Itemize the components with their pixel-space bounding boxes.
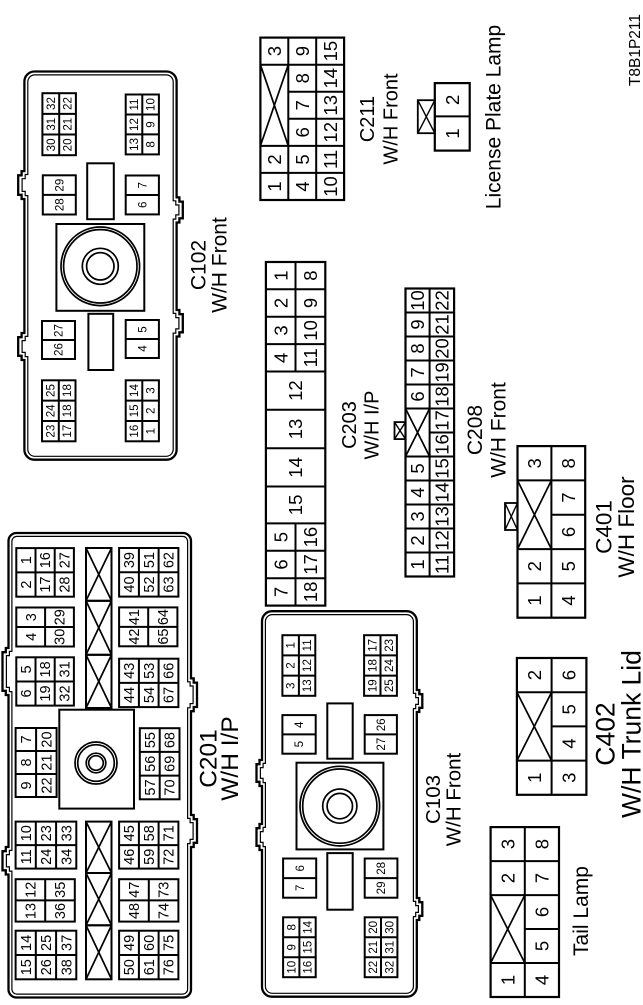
svg-text:5: 5 <box>407 463 428 473</box>
svg-text:4: 4 <box>292 181 313 191</box>
svg-text:23: 23 <box>45 425 58 438</box>
svg-text:8: 8 <box>407 343 428 353</box>
svg-text:37: 37 <box>59 935 75 951</box>
svg-text:17: 17 <box>61 425 74 438</box>
svg-text:25: 25 <box>383 679 396 692</box>
svg-text:4: 4 <box>270 353 291 363</box>
svg-text:C208: C208 <box>464 405 487 455</box>
svg-text:64: 64 <box>156 609 172 625</box>
svg-text:14: 14 <box>19 935 35 951</box>
svg-text:11: 11 <box>320 150 341 169</box>
svg-text:5: 5 <box>292 154 313 164</box>
svg-text:7: 7 <box>558 492 579 502</box>
svg-text:13: 13 <box>320 95 341 116</box>
svg-text:2: 2 <box>145 408 158 414</box>
svg-text:40: 40 <box>122 576 138 592</box>
svg-text:10: 10 <box>19 825 35 841</box>
svg-text:48: 48 <box>127 903 143 919</box>
svg-text:8: 8 <box>145 141 158 147</box>
svg-text:4: 4 <box>293 721 306 728</box>
svg-text:66: 66 <box>162 663 178 679</box>
svg-text:23: 23 <box>383 639 396 652</box>
svg-text:27: 27 <box>53 324 66 337</box>
svg-text:1: 1 <box>524 773 545 783</box>
svg-text:3: 3 <box>145 387 158 393</box>
svg-text:7: 7 <box>407 367 428 377</box>
svg-text:29: 29 <box>53 609 69 625</box>
svg-text:32: 32 <box>45 97 58 110</box>
svg-text:3: 3 <box>24 613 40 621</box>
svg-text:3: 3 <box>524 458 545 468</box>
svg-text:4: 4 <box>558 595 579 605</box>
svg-text:49: 49 <box>122 935 138 951</box>
svg-text:25: 25 <box>45 384 58 397</box>
svg-text:5: 5 <box>270 532 291 542</box>
svg-text:17: 17 <box>38 577 54 593</box>
svg-text:W/H Front: W/H Front <box>443 753 466 847</box>
svg-text:28: 28 <box>375 862 388 875</box>
svg-text:W/H Front: W/H Front <box>381 73 403 165</box>
svg-text:14: 14 <box>302 920 315 933</box>
svg-text:19: 19 <box>432 362 453 383</box>
svg-text:W/H Front: W/H Front <box>488 382 511 478</box>
svg-text:51: 51 <box>142 552 158 568</box>
svg-text:15: 15 <box>320 41 341 62</box>
svg-text:10: 10 <box>300 320 321 341</box>
svg-text:4: 4 <box>24 633 40 641</box>
svg-text:30: 30 <box>45 138 58 151</box>
svg-text:21: 21 <box>432 314 453 335</box>
svg-text:16: 16 <box>302 961 315 974</box>
svg-text:35: 35 <box>53 882 69 898</box>
svg-text:1: 1 <box>285 642 298 648</box>
svg-text:12: 12 <box>24 882 40 898</box>
svg-text:W/H I/P: W/H I/P <box>362 391 384 460</box>
svg-text:T8B1P211: T8B1P211 <box>627 14 643 86</box>
svg-text:15: 15 <box>128 404 141 417</box>
svg-text:4: 4 <box>136 345 149 352</box>
svg-text:4: 4 <box>559 738 580 748</box>
svg-text:13: 13 <box>24 903 40 919</box>
svg-text:13: 13 <box>285 419 306 440</box>
svg-text:9: 9 <box>145 121 158 127</box>
svg-text:16: 16 <box>128 425 141 438</box>
svg-text:14: 14 <box>128 384 141 397</box>
svg-text:2: 2 <box>442 95 463 105</box>
svg-text:21: 21 <box>40 754 56 770</box>
svg-text:20: 20 <box>40 731 56 747</box>
svg-text:12: 12 <box>432 530 453 551</box>
svg-text:W/H I/P: W/H I/P <box>217 716 244 800</box>
svg-text:31: 31 <box>383 941 396 954</box>
svg-text:6: 6 <box>294 865 307 871</box>
svg-text:12: 12 <box>320 122 341 143</box>
svg-text:75: 75 <box>162 935 178 951</box>
svg-text:1: 1 <box>497 975 518 985</box>
svg-text:5: 5 <box>532 941 553 951</box>
svg-text:7: 7 <box>292 100 313 110</box>
svg-text:32: 32 <box>57 685 73 701</box>
svg-text:76: 76 <box>162 959 178 975</box>
svg-text:15: 15 <box>19 959 35 975</box>
svg-text:5: 5 <box>558 561 579 571</box>
svg-text:3: 3 <box>497 839 518 849</box>
svg-text:License Plate Lamp: License Plate Lamp <box>483 25 506 209</box>
svg-text:22: 22 <box>432 290 453 311</box>
svg-text:10: 10 <box>407 290 428 311</box>
svg-text:8: 8 <box>300 270 321 280</box>
svg-text:65: 65 <box>156 629 172 645</box>
svg-text:9: 9 <box>407 319 428 329</box>
svg-text:73: 73 <box>157 882 173 898</box>
svg-text:39: 39 <box>122 552 138 568</box>
svg-text:Tail Lamp: Tail Lamp <box>570 866 593 956</box>
svg-text:57: 57 <box>143 779 159 795</box>
svg-text:31: 31 <box>57 661 73 677</box>
svg-text:14: 14 <box>320 68 341 89</box>
svg-text:1: 1 <box>270 270 291 280</box>
svg-text:24: 24 <box>383 659 396 672</box>
svg-text:59: 59 <box>142 849 158 865</box>
svg-text:67: 67 <box>162 687 178 703</box>
svg-text:62: 62 <box>162 552 178 568</box>
svg-text:2: 2 <box>270 298 291 308</box>
svg-text:42: 42 <box>127 629 143 645</box>
svg-text:5: 5 <box>559 704 580 714</box>
svg-text:1: 1 <box>19 556 35 564</box>
svg-text:10: 10 <box>285 961 298 974</box>
svg-text:30: 30 <box>383 921 396 934</box>
svg-text:50: 50 <box>122 959 138 975</box>
svg-text:6: 6 <box>559 670 580 680</box>
svg-text:53: 53 <box>142 663 158 679</box>
svg-text:7: 7 <box>136 182 149 188</box>
svg-text:29: 29 <box>53 179 66 192</box>
svg-text:5: 5 <box>293 741 306 747</box>
svg-text:20: 20 <box>432 338 453 359</box>
svg-text:14: 14 <box>432 482 453 503</box>
svg-text:4: 4 <box>532 975 553 985</box>
svg-text:C102: C102 <box>188 240 211 290</box>
svg-text:8: 8 <box>532 839 553 849</box>
svg-text:15: 15 <box>432 458 453 479</box>
svg-text:34: 34 <box>59 849 75 865</box>
svg-text:26: 26 <box>375 718 388 731</box>
svg-text:56: 56 <box>143 756 159 772</box>
svg-text:5: 5 <box>136 326 149 332</box>
svg-text:55: 55 <box>143 732 159 748</box>
svg-text:19: 19 <box>366 679 379 692</box>
svg-text:C203: C203 <box>339 401 361 449</box>
svg-text:2: 2 <box>524 670 545 680</box>
svg-text:6: 6 <box>292 127 313 137</box>
svg-text:16: 16 <box>300 527 321 548</box>
svg-text:29: 29 <box>375 881 388 894</box>
svg-text:11: 11 <box>300 348 321 367</box>
svg-text:26: 26 <box>53 343 66 356</box>
svg-text:13: 13 <box>432 506 453 527</box>
svg-text:2: 2 <box>19 581 35 589</box>
svg-text:2: 2 <box>497 873 518 883</box>
svg-text:1: 1 <box>407 559 428 569</box>
svg-text:15: 15 <box>302 941 315 954</box>
svg-text:6: 6 <box>19 689 35 697</box>
svg-text:9: 9 <box>300 298 321 308</box>
svg-text:W/H Front: W/H Front <box>209 217 232 313</box>
svg-text:16: 16 <box>38 552 54 568</box>
svg-text:22: 22 <box>367 961 380 974</box>
svg-text:7: 7 <box>294 885 307 891</box>
svg-text:43: 43 <box>122 663 138 679</box>
svg-text:18: 18 <box>61 384 74 397</box>
svg-text:38: 38 <box>59 959 75 975</box>
svg-text:1: 1 <box>145 428 158 434</box>
svg-text:2: 2 <box>264 154 285 164</box>
svg-text:45: 45 <box>122 825 138 841</box>
svg-text:30: 30 <box>53 629 69 645</box>
svg-text:25: 25 <box>39 935 55 951</box>
svg-text:74: 74 <box>157 903 173 919</box>
svg-text:63: 63 <box>162 576 178 592</box>
svg-text:2: 2 <box>524 561 545 571</box>
svg-text:8: 8 <box>19 758 35 766</box>
svg-text:41: 41 <box>127 609 143 625</box>
svg-text:12: 12 <box>128 118 141 131</box>
svg-text:24: 24 <box>39 849 55 865</box>
svg-text:8: 8 <box>292 73 313 83</box>
svg-text:58: 58 <box>142 825 158 841</box>
svg-text:10: 10 <box>145 98 158 111</box>
svg-text:7: 7 <box>532 873 553 883</box>
svg-text:19: 19 <box>38 685 54 701</box>
svg-text:11: 11 <box>432 555 453 574</box>
svg-text:3: 3 <box>264 46 285 56</box>
svg-text:28: 28 <box>53 198 66 211</box>
svg-text:3: 3 <box>285 682 298 688</box>
svg-text:17: 17 <box>432 410 453 431</box>
svg-text:14: 14 <box>285 457 306 478</box>
svg-text:9: 9 <box>292 46 313 56</box>
svg-text:1: 1 <box>442 128 463 138</box>
svg-text:20: 20 <box>62 138 75 151</box>
svg-text:12: 12 <box>285 380 306 401</box>
svg-text:9: 9 <box>19 781 35 789</box>
svg-text:8: 8 <box>285 924 298 930</box>
svg-text:20: 20 <box>367 921 380 934</box>
svg-text:22: 22 <box>62 97 75 110</box>
svg-text:23: 23 <box>39 825 55 841</box>
svg-text:7: 7 <box>270 587 291 597</box>
svg-text:32: 32 <box>383 961 396 974</box>
svg-text:1: 1 <box>264 181 285 191</box>
svg-text:13: 13 <box>301 679 314 692</box>
svg-text:71: 71 <box>162 825 178 841</box>
svg-text:18: 18 <box>366 659 379 672</box>
svg-text:27: 27 <box>57 552 73 568</box>
svg-text:3: 3 <box>559 773 580 783</box>
svg-text:9: 9 <box>285 944 298 950</box>
svg-text:4: 4 <box>407 487 428 497</box>
svg-text:7: 7 <box>19 735 35 743</box>
svg-text:22: 22 <box>40 777 56 793</box>
svg-text:W/H Trunk Lid: W/H Trunk Lid <box>617 650 643 818</box>
svg-text:3: 3 <box>270 325 291 335</box>
svg-text:18: 18 <box>61 404 74 417</box>
svg-text:16: 16 <box>432 434 453 455</box>
svg-text:5: 5 <box>19 665 35 673</box>
svg-text:36: 36 <box>53 903 69 919</box>
svg-text:18: 18 <box>38 661 54 677</box>
svg-text:12: 12 <box>301 659 314 672</box>
svg-text:17: 17 <box>366 639 379 652</box>
svg-text:27: 27 <box>375 738 388 751</box>
svg-text:6: 6 <box>532 907 553 917</box>
svg-text:3: 3 <box>407 511 428 521</box>
svg-text:68: 68 <box>163 732 179 748</box>
svg-text:1: 1 <box>524 595 545 605</box>
svg-text:6: 6 <box>407 391 428 401</box>
svg-text:8: 8 <box>558 458 579 468</box>
svg-text:24: 24 <box>45 404 58 417</box>
svg-text:52: 52 <box>142 576 158 592</box>
svg-text:46: 46 <box>122 849 138 865</box>
svg-text:6: 6 <box>270 559 291 569</box>
svg-text:72: 72 <box>162 849 178 865</box>
svg-text:2: 2 <box>407 535 428 545</box>
svg-text:11: 11 <box>19 849 35 864</box>
svg-text:70: 70 <box>163 779 179 795</box>
svg-text:2: 2 <box>285 662 298 668</box>
svg-text:54: 54 <box>142 687 158 703</box>
svg-text:31: 31 <box>45 118 58 131</box>
svg-text:W/H Floor: W/H Floor <box>614 476 639 578</box>
svg-text:21: 21 <box>62 118 75 131</box>
svg-text:47: 47 <box>127 882 143 898</box>
svg-text:C211: C211 <box>357 96 379 142</box>
svg-text:10: 10 <box>320 176 341 197</box>
svg-text:18: 18 <box>432 386 453 407</box>
svg-text:11: 11 <box>301 639 314 651</box>
svg-text:28: 28 <box>57 577 73 593</box>
svg-text:18: 18 <box>300 582 321 603</box>
svg-text:44: 44 <box>122 687 138 703</box>
svg-text:60: 60 <box>142 935 158 951</box>
svg-text:69: 69 <box>163 756 179 772</box>
svg-text:C401: C401 <box>592 500 617 554</box>
svg-text:6: 6 <box>558 527 579 537</box>
svg-text:6: 6 <box>136 201 149 207</box>
svg-text:21: 21 <box>367 941 380 954</box>
svg-text:11: 11 <box>128 98 141 110</box>
svg-text:61: 61 <box>142 959 158 975</box>
svg-text:13: 13 <box>128 138 141 151</box>
svg-text:15: 15 <box>285 495 306 516</box>
svg-text:17: 17 <box>300 554 321 575</box>
svg-text:26: 26 <box>39 959 55 975</box>
svg-text:33: 33 <box>59 825 75 841</box>
